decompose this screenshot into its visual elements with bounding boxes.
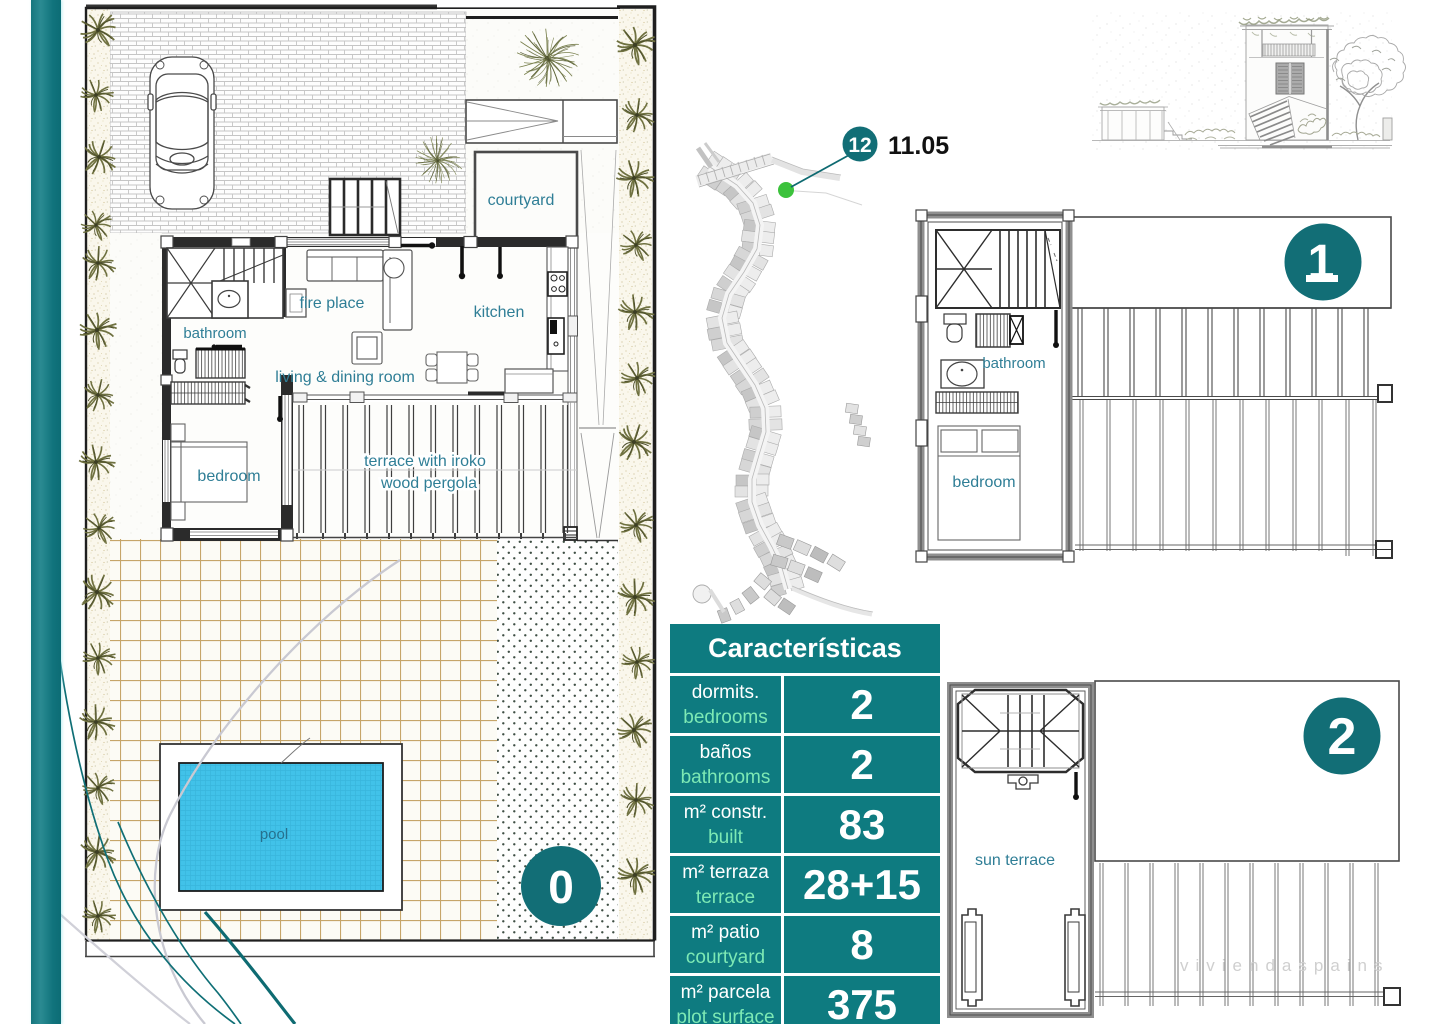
svg-text:bathroom: bathroom: [183, 325, 246, 342]
svg-text:bedroom: bedroom: [952, 474, 1015, 491]
svg-text:pool: pool: [260, 826, 288, 843]
svg-text:bedroom: bedroom: [197, 468, 260, 485]
svg-text:12: 12: [848, 134, 871, 157]
svg-text:wood pergola: wood pergola: [380, 475, 477, 492]
svg-text:living & dining room: living & dining room: [275, 369, 415, 386]
svg-text:11.05: 11.05: [888, 132, 949, 160]
svg-text:0: 0: [548, 861, 574, 913]
svg-text:2: 2: [1328, 708, 1357, 766]
svg-text:terrace with iroko: terrace with iroko: [364, 453, 486, 470]
svg-text:courtyard: courtyard: [488, 192, 555, 209]
svg-text:kitchen: kitchen: [474, 304, 525, 321]
svg-text:viviendaspains: viviendaspains: [1180, 956, 1390, 975]
svg-text:fire place: fire place: [300, 295, 365, 312]
svg-text:sun terrace: sun terrace: [975, 852, 1055, 869]
svg-text:bathroom: bathroom: [982, 355, 1045, 372]
